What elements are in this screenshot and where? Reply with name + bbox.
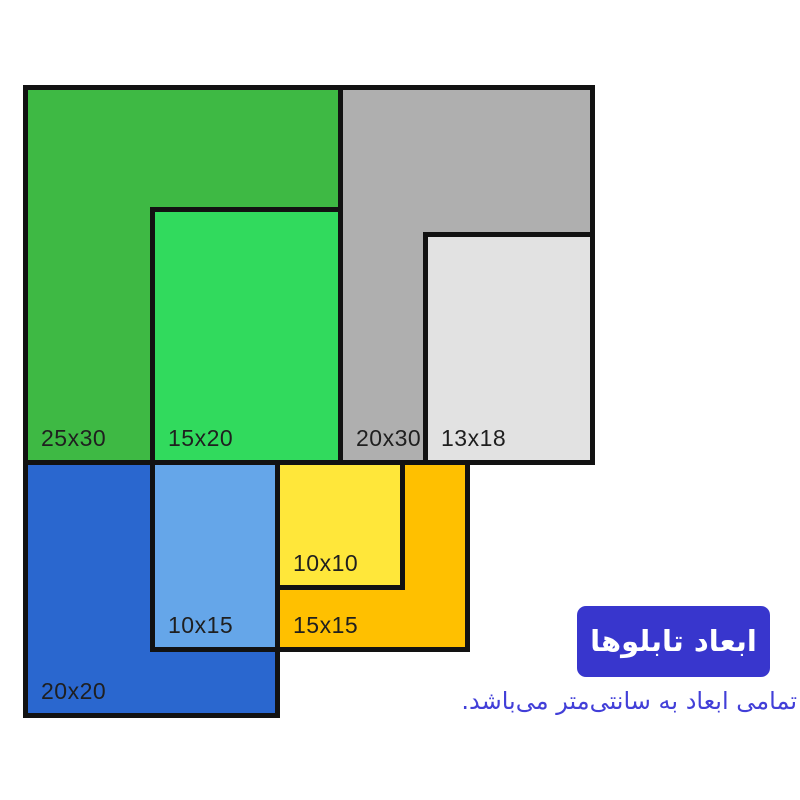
size-label: 20x30 [356, 425, 421, 452]
frame-10x15: 10x15 [150, 460, 280, 652]
size-label: 13x18 [441, 425, 506, 452]
size-label: 25x30 [41, 425, 106, 452]
legend-badge: ابعاد تابلوها [577, 606, 770, 677]
size-label: 15x20 [168, 425, 233, 452]
size-label: 10x15 [168, 612, 233, 639]
infographic-canvas: 25x3015x2020x3013x1820x2010x1515x1510x10… [0, 0, 800, 800]
legend-badge-label: ابعاد تابلوها [590, 627, 757, 656]
size-label: 15x15 [293, 612, 358, 639]
frame-15x20: 15x20 [150, 207, 343, 465]
size-label: 20x20 [41, 678, 106, 705]
frame-10x10: 10x10 [275, 460, 405, 590]
legend-subtitle: تمامی ابعاد به سانتی‌متر می‌باشد. [390, 686, 797, 717]
size-label: 10x10 [293, 550, 358, 577]
frame-13x18: 13x18 [423, 232, 595, 465]
